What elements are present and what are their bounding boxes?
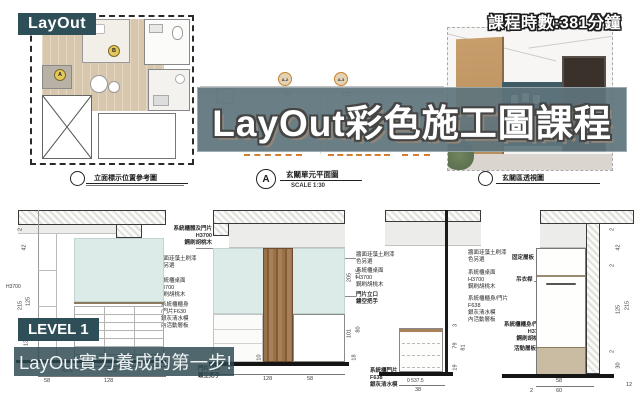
layout-badge-label: LayOut [28,15,86,32]
terrace [42,95,92,159]
dim: 3 [453,317,460,335]
dim: 58 [44,378,50,384]
dim: 38 [415,387,421,393]
cabinet-shelf-dash [402,355,440,356]
dim: 79 [453,337,460,355]
plan-orange-dash3 [402,154,430,156]
dim: 215 [18,297,25,315]
wall-edge [445,210,448,372]
dim: 10 [257,349,264,367]
dim: 125 [616,301,623,319]
unit-plan-bubble-label: A [262,174,269,185]
closet-line [38,270,56,271]
course-duration: 課程時數:381分鐘 [488,9,621,33]
counter-top [74,302,164,304]
dim: 60 [556,388,562,394]
beam-hatch [213,210,345,224]
course-poster: A B LayOut 立面標示位置參考圖 58 128 A-2 A-3 [0,0,640,400]
dim: 0 537.5 [407,378,424,384]
marker-a3-label: A-3 [338,77,344,82]
dim: 215 [625,297,632,315]
course-banner-title: LayOut彩色施工圖課程 [212,93,611,147]
dim: 128 [104,378,113,384]
plan-ref-underline2 [86,185,184,186]
level-badge: LEVEL 1 [18,318,99,341]
floor-plan: A B [30,15,194,165]
fixed-shelf [537,275,585,277]
teal-wall-panel [74,238,164,302]
perspective-underline [496,183,600,184]
elevation-d: 2 42 2 125 215 2 30 12 58 60 2 [530,210,634,400]
dim: 101 [347,325,354,343]
course-duration-text: 課程時數:381分鐘 [488,15,621,32]
ceiling-line2 [528,32,613,48]
dim: 58 [556,378,562,384]
tagline-band: LayOut實力養成的第一步! [14,347,234,376]
hanging-rod [546,283,576,285]
dim: 2 [18,221,25,239]
layout-badge: LayOut [18,13,96,35]
dining-table [90,75,108,93]
cabinet-shelf-dash [402,343,440,344]
level-badge-label: LEVEL 1 [28,321,89,338]
section-marker-a2: A-2 [278,72,292,86]
beam-stub-hatch [116,224,142,238]
dim: 81 [461,339,468,357]
marker-a2-label: A-2 [282,77,288,82]
dim: 2 [530,388,533,394]
lower-cabinet [537,347,585,374]
section-marker-a3: A-3 [334,72,348,86]
soffit [385,222,481,246]
plan-ref-underline [86,183,188,184]
marker-a-label: A [58,72,62,78]
beam-hatch [385,210,481,222]
wardrobe-section [536,248,586,374]
stone-tiles [293,314,345,362]
unit-plan-label: 玄關單元平面圖 [286,169,339,180]
elevation-marker-a: A [54,69,66,81]
plan-orange-dash2 [328,154,390,156]
annotation: 系統櫃櫃身 /門片F630 銀灰清水模 內活動層板 [161,302,215,331]
low-cabinet [399,328,443,372]
dim: 125 [26,293,33,311]
marker-b-label: B [112,48,116,54]
dining-stool [108,81,120,93]
wall-hatch-column [586,223,600,374]
cabinet-shelf-dash [402,367,440,368]
elevation-marker-b: B [108,45,120,57]
cabinet-line [214,343,262,344]
dim-line [536,386,594,387]
kitchen [148,69,190,111]
beam-stub-hatch [213,223,229,236]
plan-ref-symbol-icon [70,171,85,186]
dim: 42 [22,239,29,257]
balcony [98,113,176,159]
cabinet-line [214,329,262,330]
dim: 2 [610,257,617,275]
wood-panel [263,248,293,362]
dim: 205 [347,269,354,287]
unit-plan-underline [280,180,362,181]
dim: 215 [356,265,363,283]
dim: 58 [307,376,313,382]
dim: 2 [610,221,617,239]
course-banner: LayOut彩色施工圖課程 [197,87,627,152]
dim-line [399,385,445,386]
beam-hatch [18,210,166,225]
soffit [540,224,586,248]
elevation-c: 3 79 81 19 0 537.5 38 [385,210,481,392]
dim: 18 [352,349,359,367]
soffit [229,224,345,248]
annotation: 系統櫃桌面 H3700 鋼刷胡桃木 [158,278,212,299]
dim: 12 [626,382,632,388]
closet-line [38,306,56,307]
cabinet-wood-top [400,329,442,332]
unit-plan-bubble: A [256,169,276,189]
unit-plan-scale: SCALE 1:30 [291,183,325,189]
bathroom [144,19,190,65]
dim-h3700: H3700 [6,284,21,290]
beam-hatch [540,210,634,224]
dim: 30 [616,357,623,375]
soffit [18,225,116,234]
dim: 80 [356,321,363,339]
dim-line [38,376,166,377]
plan-orange-dash1 [244,154,302,156]
perspective-label: 玄關區透視圖 [502,173,544,183]
dim: 42 [616,239,623,257]
plan-ref-label: 立面標示位置參考圖 [94,173,157,183]
terrace-cross-icon [43,96,91,158]
annotation: 牆面珪藻土刷漆 色另選 [158,256,212,270]
dim: 128 [263,376,272,382]
floor-line [379,372,453,376]
wall-line [56,234,57,362]
perspective-symbol-icon [478,171,493,186]
tagline-text: LayOut實力養成的第一步! [14,349,232,375]
dim: 19 [453,359,460,377]
